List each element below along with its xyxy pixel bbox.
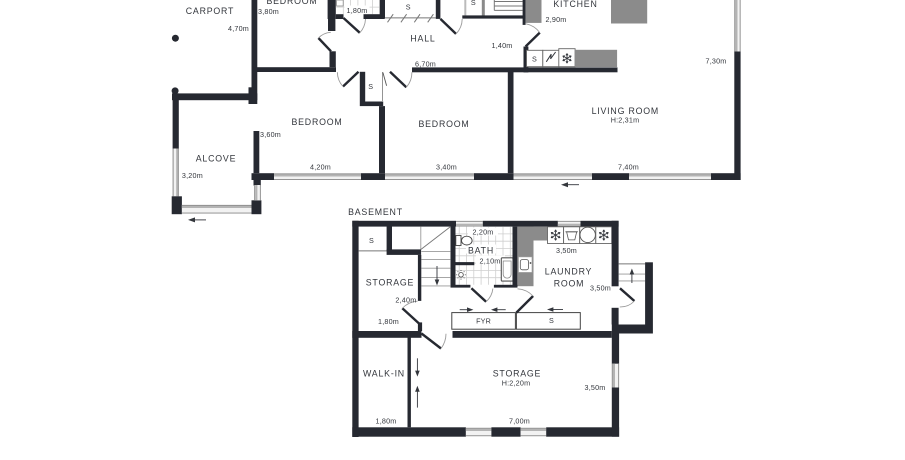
svg-text:FYR: FYR <box>476 316 491 325</box>
svg-text:3,40m: 3,40m <box>436 162 457 171</box>
svg-text:1,80m: 1,80m <box>378 317 399 326</box>
svg-text:S: S <box>369 236 374 245</box>
svg-text:S: S <box>532 55 537 64</box>
svg-text:BEDROOM: BEDROOM <box>266 0 317 6</box>
svg-text:BASEMENT: BASEMENT <box>348 207 403 217</box>
svg-text:7,40m: 7,40m <box>618 162 639 171</box>
svg-text:3,50m: 3,50m <box>590 283 611 292</box>
svg-text:S: S <box>549 316 554 325</box>
svg-text:3,50m: 3,50m <box>585 383 606 392</box>
svg-text:CARPORT: CARPORT <box>186 6 234 16</box>
svg-text:2,40m: 2,40m <box>395 295 416 304</box>
svg-text:3,80m: 3,80m <box>258 7 279 16</box>
svg-text:2,10m: 2,10m <box>480 257 501 266</box>
svg-text:HALL: HALL <box>410 34 435 44</box>
svg-text:BEDROOM: BEDROOM <box>291 117 342 127</box>
svg-text:1,80m: 1,80m <box>376 416 397 425</box>
svg-text:KITCHEN: KITCHEN <box>553 0 597 9</box>
svg-text:S: S <box>406 3 411 12</box>
svg-text:ROOM: ROOM <box>554 279 585 289</box>
svg-text:7,00m: 7,00m <box>509 416 530 425</box>
svg-text:2,20m: 2,20m <box>473 228 494 237</box>
svg-text:STORAGE: STORAGE <box>493 369 541 379</box>
svg-text:2,90m: 2,90m <box>546 15 567 24</box>
svg-text:H:2,20m: H:2,20m <box>502 378 531 387</box>
svg-text:3,20m: 3,20m <box>182 171 203 180</box>
svg-text:3,60m: 3,60m <box>260 130 281 139</box>
svg-text:STORAGE: STORAGE <box>366 277 414 287</box>
svg-text:3,50m: 3,50m <box>556 246 577 255</box>
svg-text:1,80m: 1,80m <box>347 6 368 15</box>
svg-text:S: S <box>471 0 476 7</box>
svg-text:7,30m: 7,30m <box>706 56 727 65</box>
svg-text:ALCOVE: ALCOVE <box>196 153 237 163</box>
svg-text:BATH: BATH <box>468 246 494 256</box>
svg-text:WALK-IN: WALK-IN <box>363 368 405 378</box>
svg-text:6,70m: 6,70m <box>415 59 436 68</box>
svg-text:LAUNDRY: LAUNDRY <box>545 267 592 277</box>
svg-text:S: S <box>368 82 373 91</box>
svg-text:4,20m: 4,20m <box>310 162 331 171</box>
svg-text:4,70m: 4,70m <box>228 24 249 33</box>
svg-text:1,40m: 1,40m <box>492 41 513 50</box>
svg-text:BEDROOM: BEDROOM <box>418 119 469 129</box>
svg-text:H:2,31m: H:2,31m <box>611 115 640 124</box>
